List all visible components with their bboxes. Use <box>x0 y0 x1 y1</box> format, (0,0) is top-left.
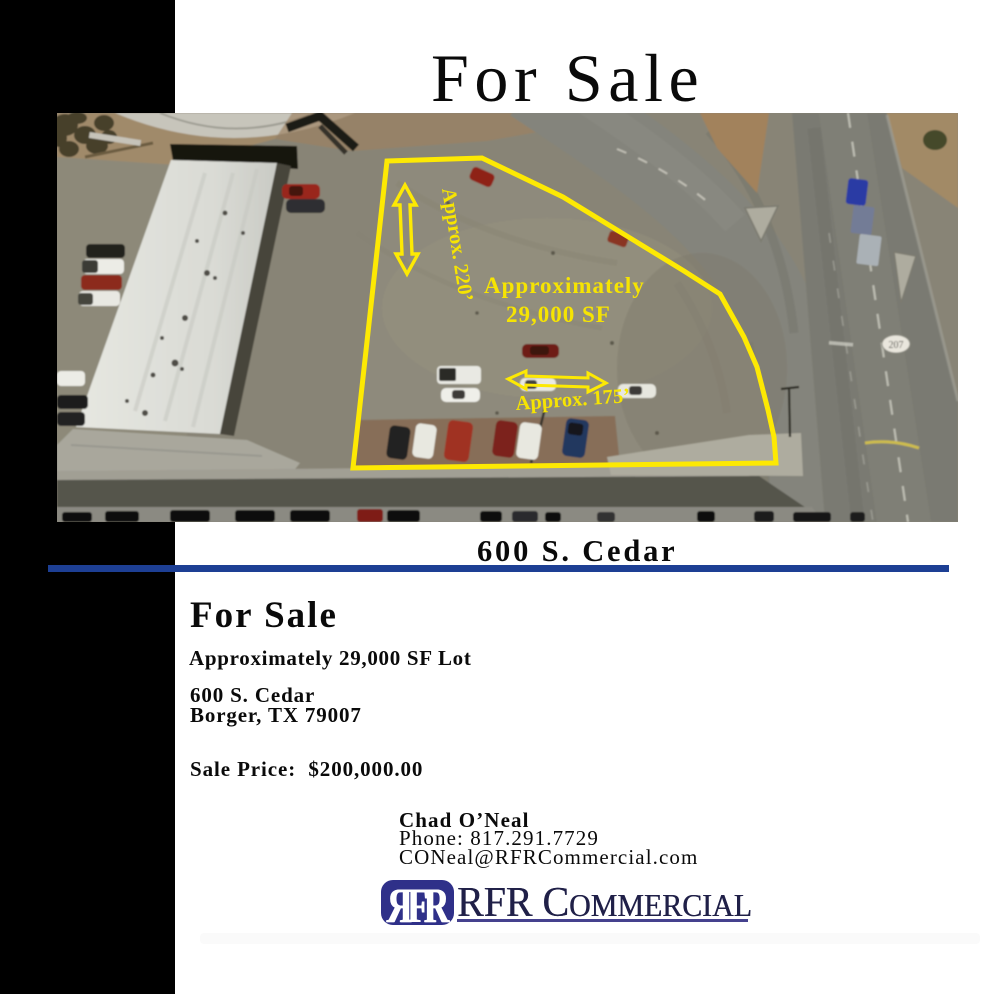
svg-text:207: 207 <box>889 340 904 351</box>
svg-text:29,000 SF: 29,000 SF <box>506 302 611 327</box>
svg-text:Approximately: Approximately <box>484 273 645 298</box>
